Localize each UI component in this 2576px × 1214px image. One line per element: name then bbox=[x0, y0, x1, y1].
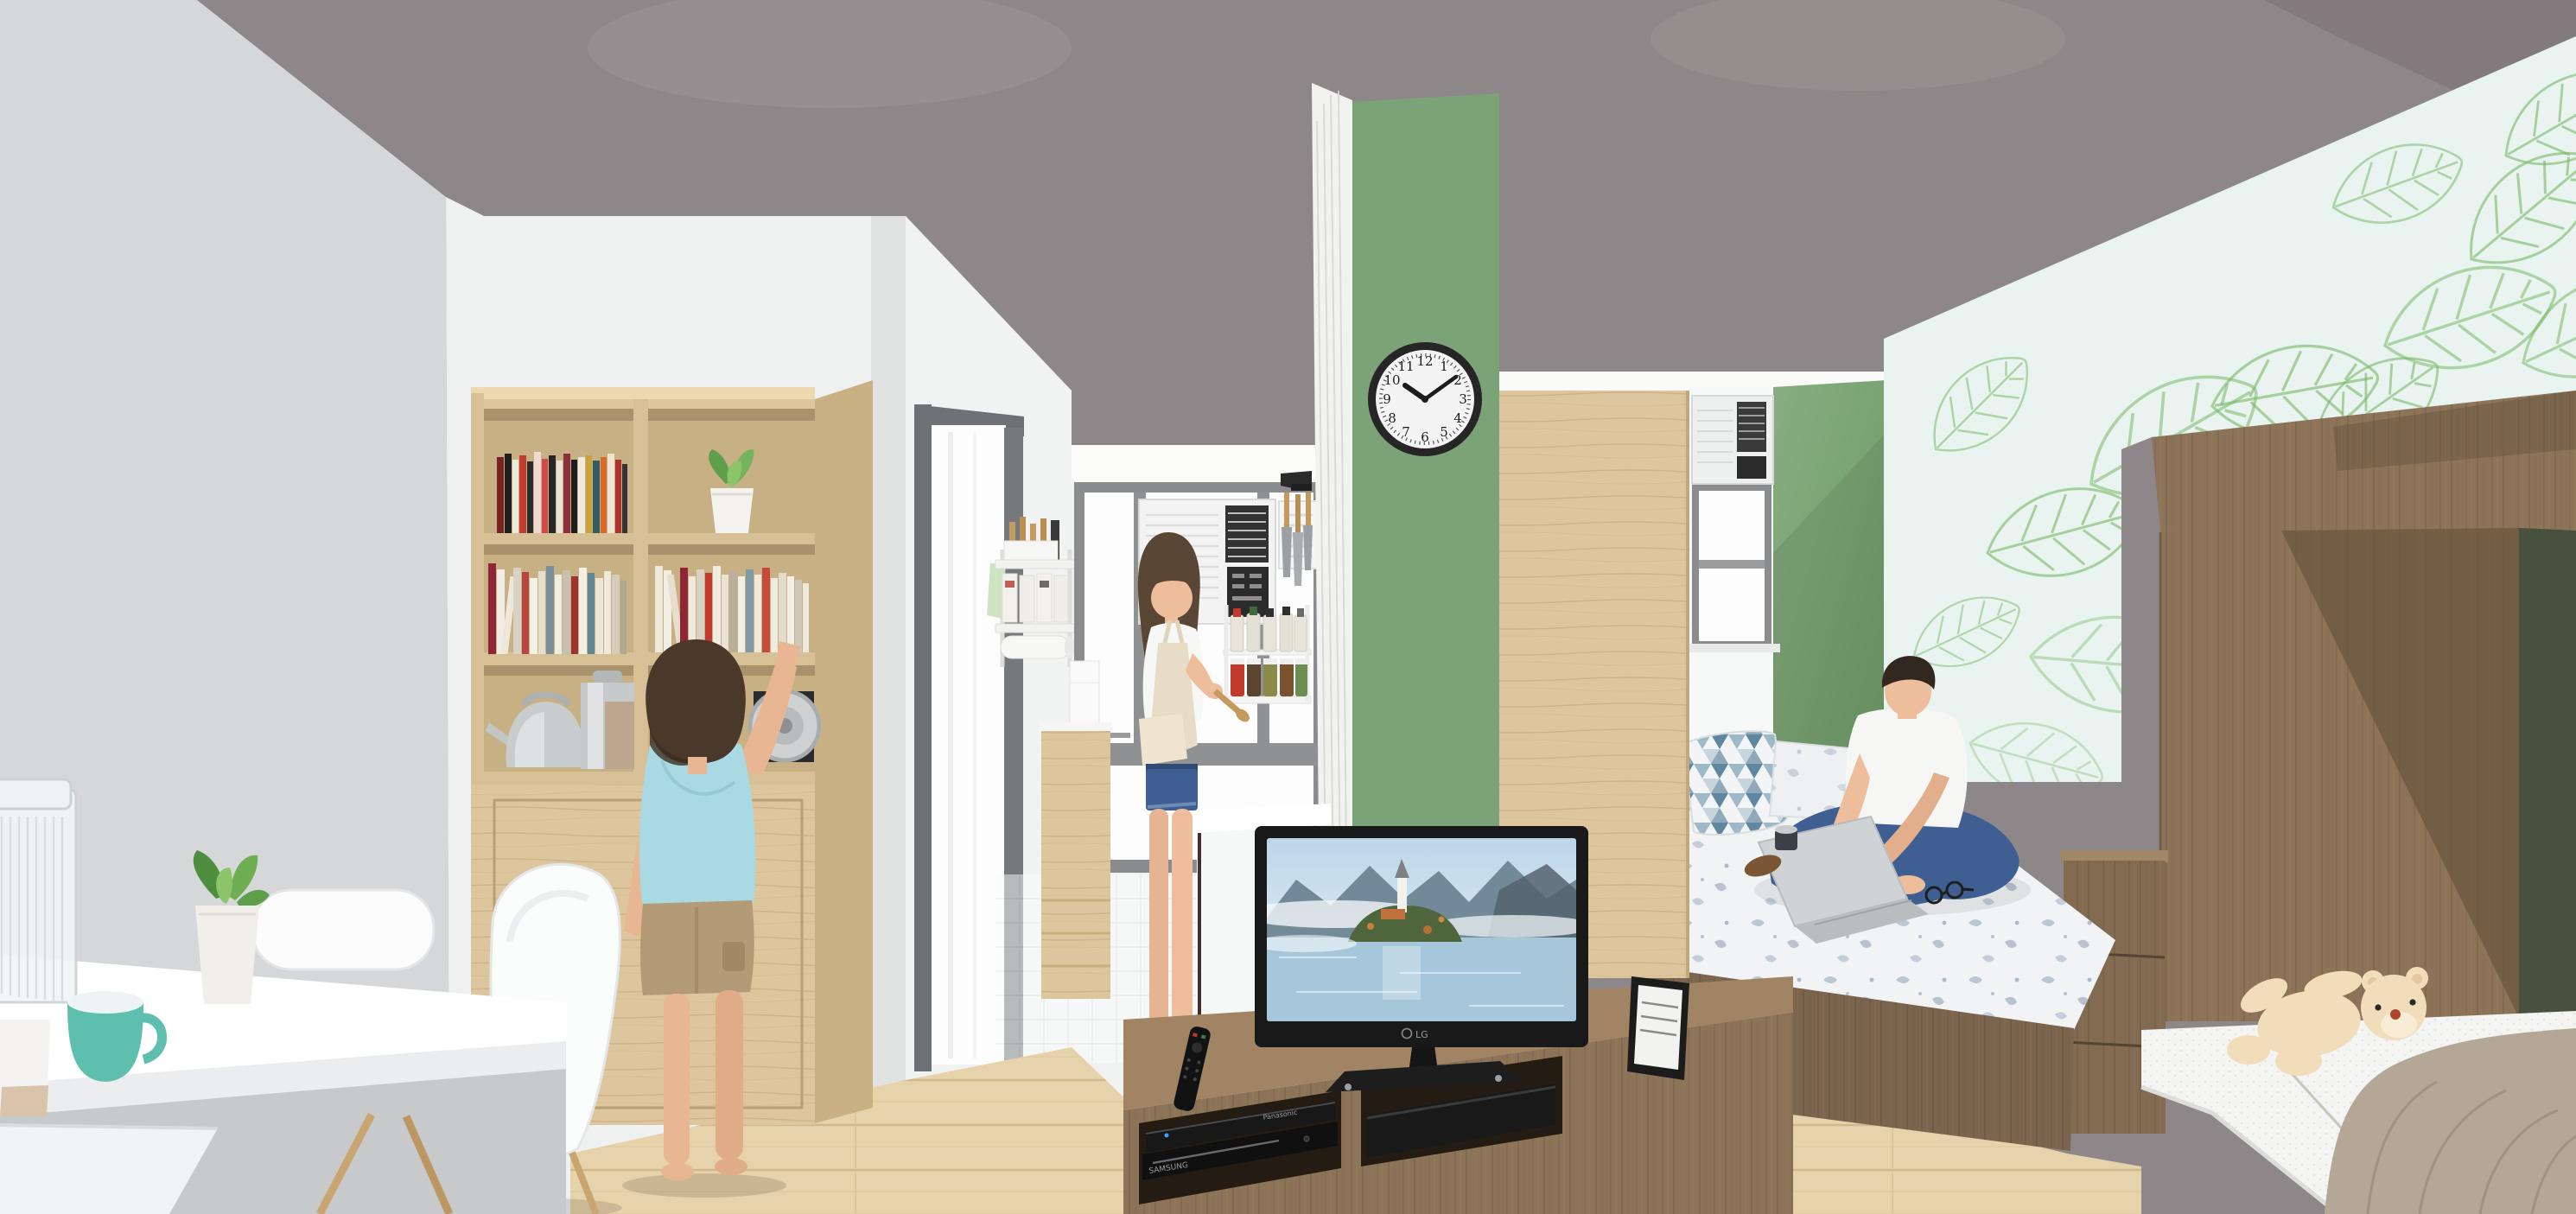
scene-canvas: Panasonic bbox=[0, 0, 2576, 1214]
clock-numeral: 7 bbox=[1402, 424, 1410, 440]
child-hair bbox=[646, 639, 746, 764]
clock-numeral: 6 bbox=[1421, 429, 1429, 445]
interior-rendering: Panasonic bbox=[0, 0, 2576, 1214]
clock-numeral: 1 bbox=[1440, 359, 1448, 374]
child-neck bbox=[688, 757, 707, 774]
paper-towel-roll bbox=[1001, 636, 1070, 658]
photo-frame bbox=[1627, 976, 1689, 1080]
clock-numeral: 2 bbox=[1453, 372, 1462, 388]
shorts-pocket bbox=[722, 942, 745, 971]
child-leg bbox=[664, 994, 690, 1165]
wall-clock: 12 1 2 3 4 5 6 7 8 9 10 11 bbox=[1368, 342, 1482, 456]
tv-screen bbox=[1240, 838, 1594, 1021]
spice-jars bbox=[1231, 658, 1307, 696]
books-row1 bbox=[497, 452, 627, 533]
wardrobe-bunk bbox=[2152, 391, 2576, 1021]
clock-numeral: 9 bbox=[1383, 391, 1391, 407]
clock-numeral: 4 bbox=[1453, 410, 1462, 426]
shelf-side-panel bbox=[815, 380, 873, 1123]
woman-leg bbox=[1172, 809, 1193, 1040]
clock-numeral: 11 bbox=[1397, 359, 1414, 374]
church-tower bbox=[1397, 876, 1407, 912]
pillow-triangle bbox=[1683, 731, 1787, 835]
canister-pot bbox=[581, 671, 634, 769]
white-mug bbox=[0, 1020, 50, 1116]
hair-bun bbox=[1179, 551, 1196, 569]
child-leg bbox=[716, 990, 743, 1160]
window-sill bbox=[1685, 644, 1780, 652]
clock-numeral: 12 bbox=[1416, 353, 1433, 369]
clock-numeral: 5 bbox=[1440, 424, 1448, 440]
hair-bun bbox=[1149, 541, 1174, 565]
tv-brand-label: LG bbox=[1415, 1029, 1428, 1040]
cup-on-bed bbox=[1775, 825, 1797, 850]
chair-back-behind-desk bbox=[252, 890, 434, 969]
bedroom-window bbox=[1685, 396, 1780, 652]
shadow-gap bbox=[2519, 528, 2576, 1021]
column-side bbox=[871, 216, 906, 1166]
teddy-nose bbox=[2390, 1009, 2401, 1020]
woman-leg bbox=[1149, 809, 1168, 1035]
clock-numeral: 8 bbox=[1388, 410, 1396, 426]
clock-numeral: 3 bbox=[1459, 391, 1467, 407]
glass-carafe bbox=[0, 779, 76, 1002]
window-mullion bbox=[1699, 560, 1765, 569]
spice-rack bbox=[1224, 605, 1311, 703]
shelf-top bbox=[471, 387, 815, 401]
apron-pouch bbox=[1139, 714, 1187, 766]
child-foot bbox=[715, 1158, 747, 1175]
clock-numeral: 10 bbox=[1383, 372, 1400, 388]
air-conditioner-bedroom bbox=[1692, 396, 1773, 484]
child-foot bbox=[661, 1163, 694, 1180]
